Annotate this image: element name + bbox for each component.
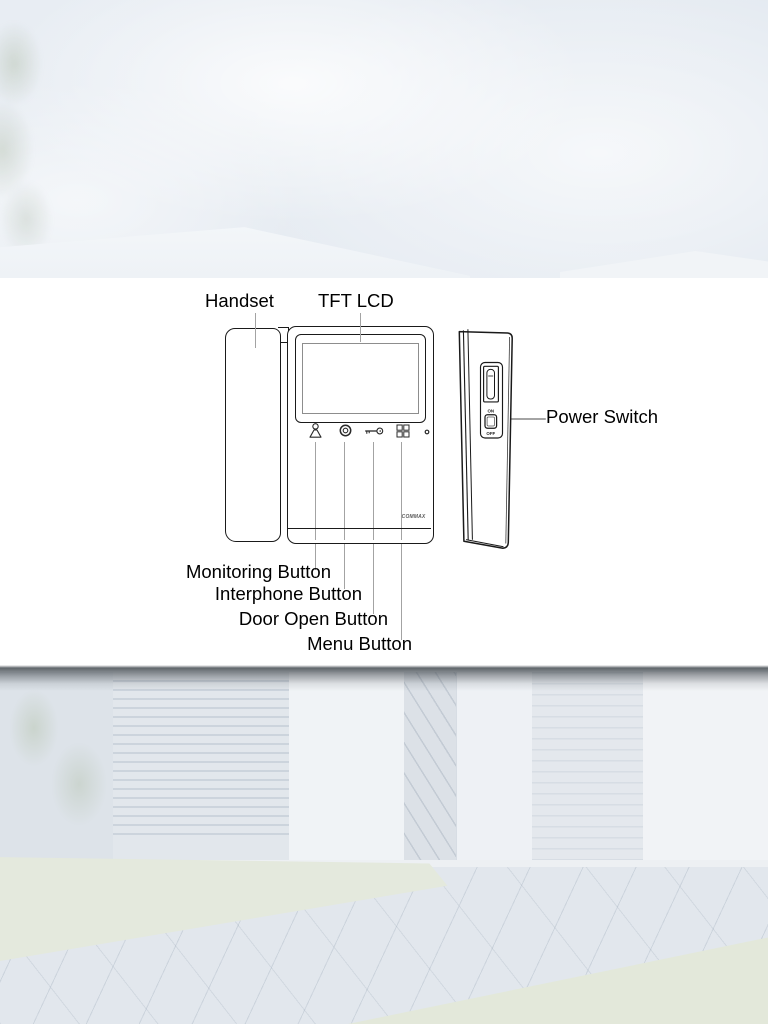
- roofline-right: [560, 248, 768, 278]
- window-glass: [532, 672, 643, 867]
- label-monitoring-button: Monitoring Button: [186, 562, 331, 582]
- door-open-key-icon: [364, 427, 384, 436]
- tree-silhouette: [0, 22, 74, 254]
- monitor-body-side-view: ON OFF: [454, 320, 546, 555]
- handset-outline: [225, 328, 281, 542]
- leader-line-handset: [255, 313, 256, 348]
- interphone-icon: [339, 424, 352, 437]
- leader-line-door-open: [373, 544, 374, 615]
- window-glass: [0, 672, 113, 859]
- wall-section: [643, 672, 768, 867]
- label-interphone-button: Interphone Button: [215, 584, 362, 604]
- leader-line-monitoring: [315, 442, 316, 540]
- panel-drop-shadow: [0, 665, 768, 691]
- leader-line-menu: [401, 442, 402, 540]
- menu-grid-icon: [396, 424, 410, 438]
- tft-lcd-screen: [302, 343, 419, 414]
- manual-page: Handset TFT LCD: [0, 0, 768, 1024]
- leader-line-door-open: [373, 442, 374, 540]
- card-slot: [484, 366, 499, 402]
- front-panel-separator-line: [288, 528, 431, 529]
- leader-line-menu: [401, 544, 402, 640]
- brand-logo: COMMAX: [402, 514, 426, 520]
- led-indicator-dot: [424, 429, 430, 435]
- label-handset: Handset: [205, 291, 274, 311]
- monitoring-icon: [308, 423, 323, 440]
- wall-pillar: [456, 672, 533, 865]
- leader-line-tft-lcd: [360, 313, 361, 342]
- label-tft-lcd: TFT LCD: [318, 291, 394, 311]
- label-door-open-button: Door Open Button: [239, 609, 388, 629]
- sky-background: [0, 0, 768, 278]
- label-menu-button: Menu Button: [307, 634, 412, 654]
- house-background: [0, 667, 768, 1024]
- stairwell-window: [404, 672, 456, 865]
- label-power-switch: Power Switch: [546, 407, 658, 427]
- window-blinds: [113, 672, 289, 861]
- leader-line-interphone: [344, 442, 345, 540]
- wall-pillar: [289, 672, 404, 863]
- power-switch-off-label: OFF: [486, 431, 495, 436]
- power-switch-on-label: ON: [488, 409, 495, 414]
